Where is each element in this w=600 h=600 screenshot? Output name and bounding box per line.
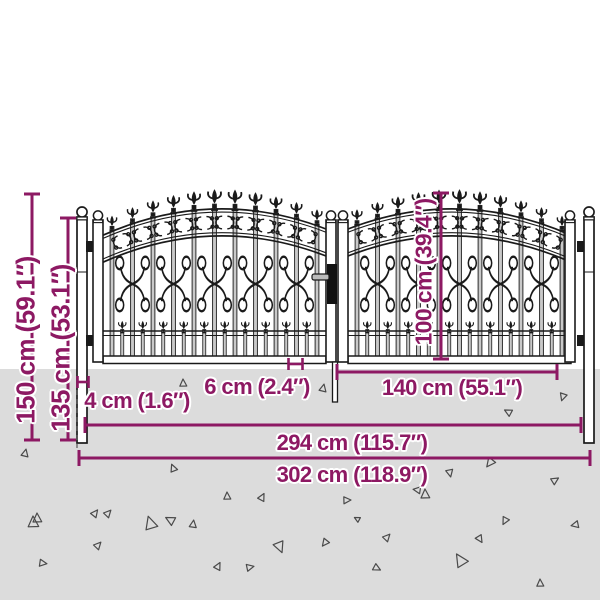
dog-bar: [468, 330, 471, 357]
picket-bar: [355, 221, 359, 357]
dog-bar: [223, 330, 226, 357]
band-scroll: [296, 227, 318, 245]
dim-label-total-height: 150 cm (59.1″): [11, 256, 42, 423]
hinge: [577, 241, 584, 252]
picket-finial: [536, 207, 546, 224]
dog-bar: [121, 330, 124, 357]
bottom-rail: [103, 356, 326, 364]
right-hinge-stile: [565, 211, 575, 362]
band-scroll: [153, 221, 174, 237]
stile-ball-cap: [93, 211, 102, 223]
band-scroll: [215, 216, 234, 229]
band-scroll: [194, 216, 214, 230]
band-scroll: [460, 216, 480, 230]
left-gate-leaf: [103, 189, 326, 363]
picket-finial: [516, 200, 527, 218]
picket-finial: [270, 196, 281, 215]
hinge: [577, 335, 584, 346]
dog-bar: [203, 330, 206, 357]
dim-label-frame-height: 135 cm (53.1″): [46, 264, 77, 431]
dog-bar: [285, 330, 288, 357]
dog-bar: [407, 330, 410, 357]
picket-bar: [110, 226, 114, 357]
band-scroll: [255, 218, 276, 233]
band-scroll: [111, 232, 133, 250]
dog-bar: [244, 330, 247, 357]
dog-bar: [305, 330, 308, 357]
dimension-diagram: { "diagram": { "dimensions": { "total_he…: [0, 0, 600, 600]
stile-ball-cap: [565, 211, 574, 223]
picket-finial: [107, 216, 116, 232]
picket-finial: [188, 191, 200, 212]
band-scroll: [356, 227, 378, 245]
post-ball-cap: [77, 207, 87, 220]
dim-label-total-width: 302 cm (118.9″): [277, 462, 428, 488]
dog-bar: [386, 330, 389, 357]
dog-bar: [509, 330, 512, 357]
bottom-rail: [348, 356, 571, 364]
lock-body: [327, 264, 337, 304]
dog-bar: [182, 330, 185, 357]
right-latch-stile: [338, 211, 348, 362]
picket-finial: [168, 195, 179, 214]
handle: [312, 274, 329, 280]
dog-bar: [162, 330, 165, 357]
dog-bar: [448, 330, 451, 357]
hinge: [86, 241, 93, 252]
picket-bar: [315, 221, 319, 357]
stile-ball-cap: [338, 211, 347, 223]
dim-label-post-width: 4 cm (1.6″): [84, 388, 189, 414]
post-ball-cap: [584, 207, 594, 220]
stile-bar: [338, 220, 348, 362]
dog-bar: [489, 330, 492, 357]
dim-label-leaf-height: 100 cm (39.4″): [411, 198, 438, 345]
picket-finial: [229, 190, 242, 211]
dog-bar: [530, 330, 533, 357]
stile-bar: [93, 220, 103, 362]
picket-finial: [352, 209, 362, 226]
dog-bar: [366, 330, 369, 357]
picket-finial: [474, 191, 486, 212]
band-scroll: [500, 221, 521, 237]
band-scroll: [480, 218, 501, 233]
dog-bar: [141, 330, 144, 357]
dim-label-inner-width: 294 cm (115.7″): [277, 430, 428, 456]
dim-label-bar-spacing: 6 cm (2.4″): [204, 374, 309, 400]
band-scroll: [276, 222, 297, 239]
picket-finial: [127, 207, 137, 224]
right-post: [584, 207, 594, 443]
stile-bar: [565, 220, 575, 362]
right-gate-leaf: [348, 189, 571, 363]
picket-finial: [312, 209, 322, 226]
stile-ball-cap: [326, 211, 335, 223]
band-scroll: [520, 225, 542, 242]
post-bar: [584, 217, 594, 443]
gate-illustration: [0, 0, 600, 600]
band-scroll: [132, 225, 154, 242]
picket-finial: [453, 189, 466, 211]
picket-finial: [250, 192, 262, 212]
picket-finial: [148, 200, 159, 218]
picket-finial: [208, 189, 221, 211]
picket-finial: [372, 202, 383, 220]
picket-finial: [495, 195, 506, 214]
dog-bar: [264, 330, 267, 357]
left-hinge-stile: [93, 211, 103, 362]
band-scroll: [541, 232, 563, 250]
picket-bar: [560, 226, 564, 357]
band-scroll: [440, 216, 459, 229]
dim-label-leaf-width: 140 cm (55.1″): [382, 375, 522, 401]
band-scroll: [173, 218, 194, 233]
band-scroll: [235, 216, 255, 230]
dog-bar: [550, 330, 553, 357]
band-scroll: [377, 222, 398, 239]
hinge: [86, 335, 93, 346]
picket-finial: [291, 202, 302, 220]
picket-finial: [392, 196, 403, 215]
